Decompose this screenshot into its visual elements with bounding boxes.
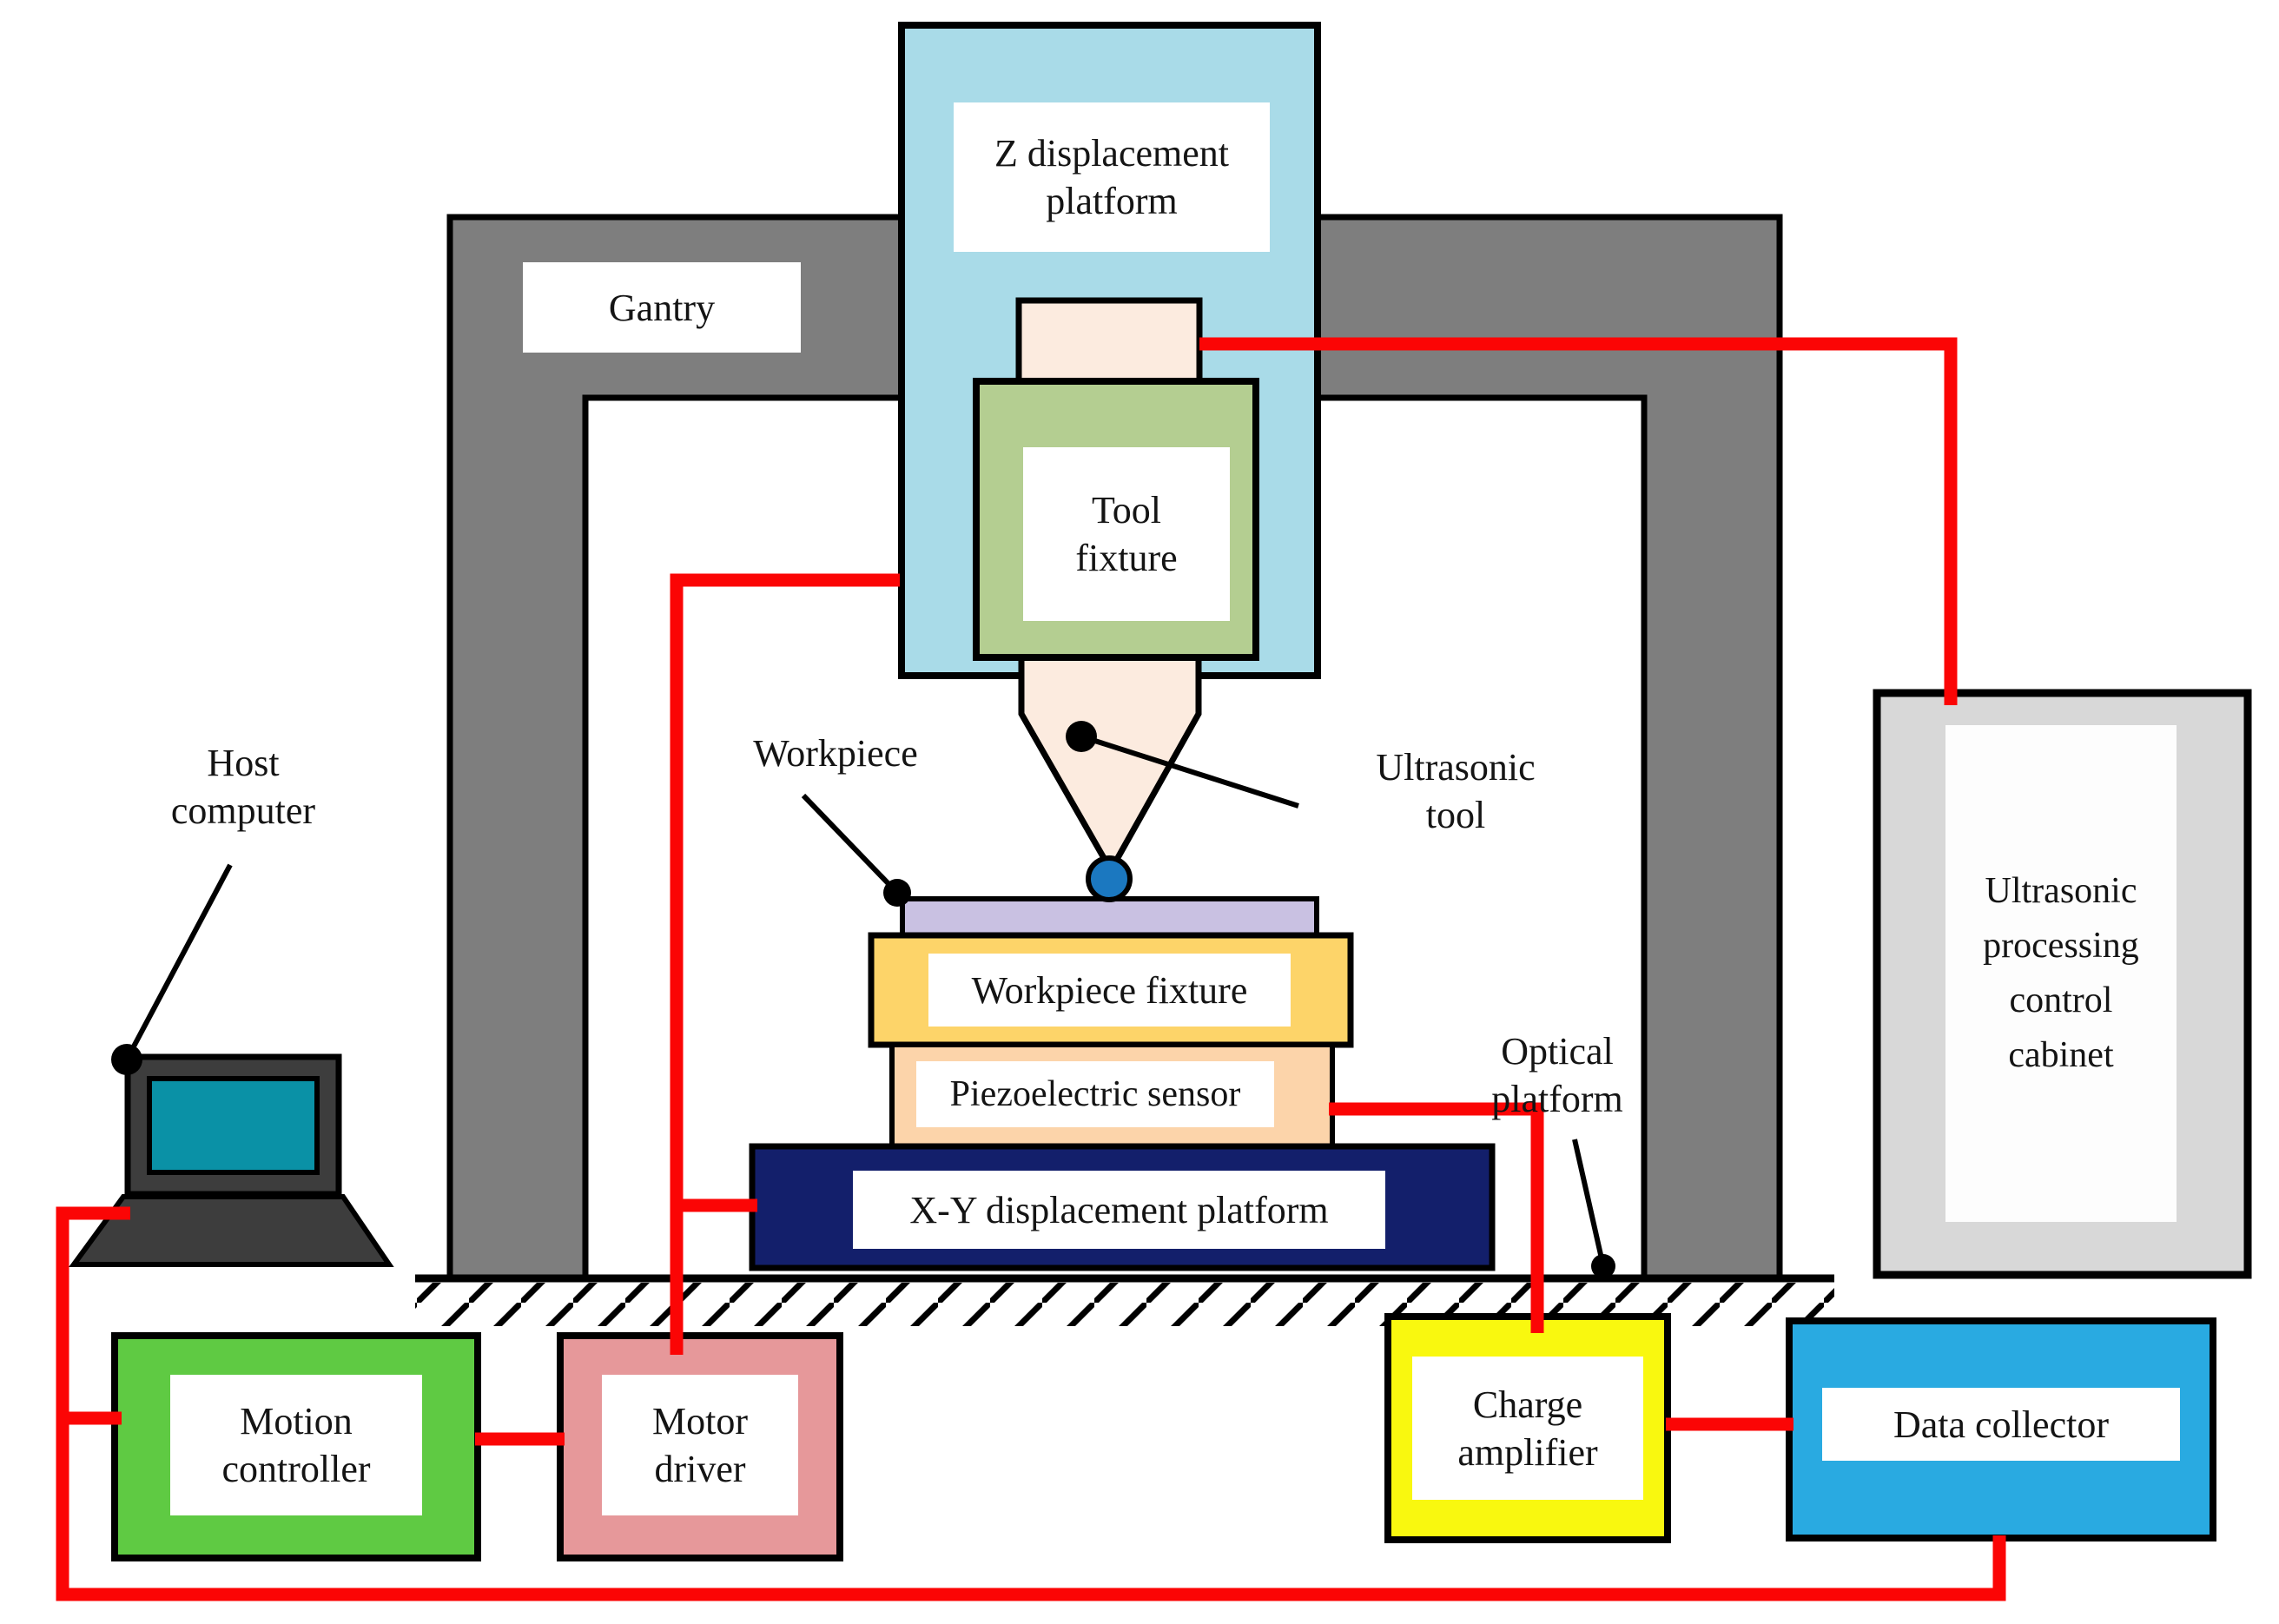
piezoelectric-sensor-label: Piezoelectric sensor: [916, 1061, 1274, 1127]
workpiece-label: Workpiece: [730, 724, 941, 782]
ultrasonic-tool-label: Ultrasonic tool: [1351, 732, 1560, 850]
workpiece-callout-dot: [883, 879, 911, 907]
tool-tip-ball: [1088, 858, 1130, 900]
data-collector-label: Data collector: [1822, 1388, 2180, 1461]
gantry-label: Gantry: [523, 262, 801, 353]
tool-fixture-label: Tool fixture: [1023, 447, 1230, 621]
laptop-display: [149, 1079, 317, 1172]
diagram-canvas: Z displacement platform Gantry Tool fixt…: [0, 0, 2279, 1624]
xy-displacement-platform-label: X-Y displacement platform: [853, 1171, 1385, 1249]
host-computer-label: Host computer: [136, 734, 350, 840]
host-computer-callout-dot: [111, 1044, 142, 1075]
ultrasonic-tool-mount: [1019, 300, 1199, 383]
optical-platform-label: Optical platform: [1452, 1018, 1662, 1132]
z-displacement-platform-label: Z displacement platform: [954, 102, 1270, 252]
motor-driver-label: Motor driver: [602, 1375, 798, 1515]
workpiece-bar: [902, 899, 1317, 935]
workpiece-callout-line: [803, 795, 897, 893]
optical-platform-callout-dot: [1591, 1254, 1615, 1278]
control-cabinet-label: Ultrasonic processing control cabinet: [1945, 725, 2177, 1222]
motion-controller-label: Motion controller: [170, 1375, 422, 1515]
workpiece-fixture-label: Workpiece fixture: [928, 954, 1291, 1027]
host-computer-callout-line: [127, 865, 230, 1060]
optical-platform-callout-line: [1575, 1139, 1603, 1266]
ultrasonic-tool-callout-dot: [1066, 721, 1097, 752]
charge-amplifier-label: Charge amplifier: [1412, 1357, 1643, 1500]
